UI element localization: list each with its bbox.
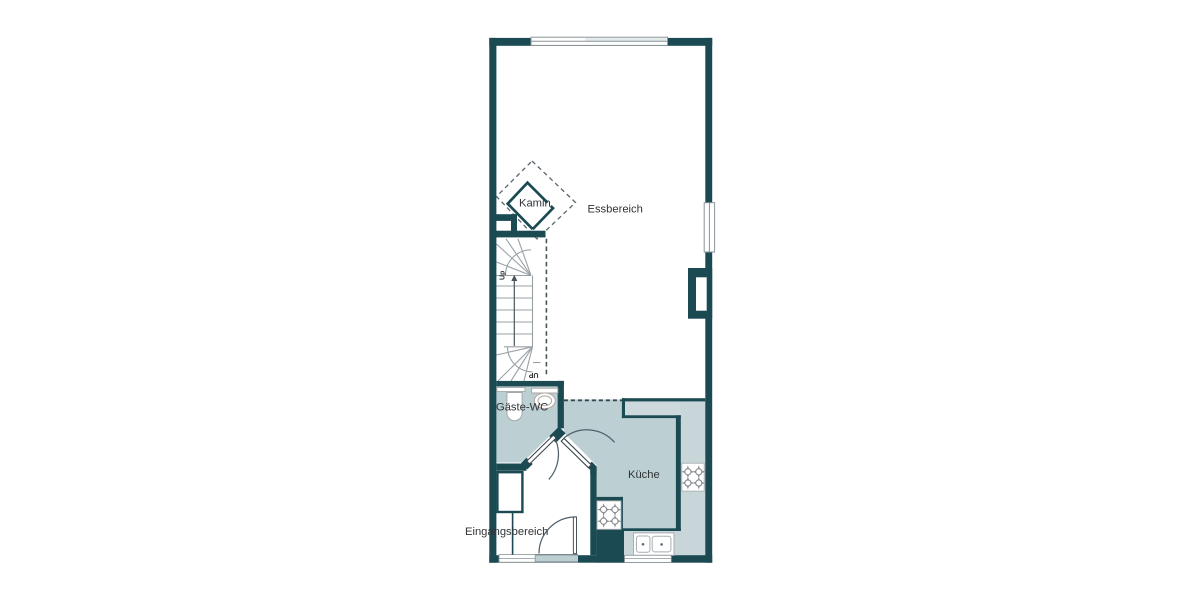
svg-text:Eingangsbereich: Eingangsbereich	[465, 526, 548, 538]
svg-text:Gäste-WC: Gäste-WC	[496, 401, 548, 413]
svg-text:Up: Up	[500, 271, 507, 280]
svg-text:UP: UP	[528, 371, 538, 378]
svg-text:Küche: Küche	[628, 469, 660, 481]
svg-text:Essbereich: Essbereich	[588, 203, 643, 215]
svg-text:Kamin: Kamin	[519, 198, 551, 210]
